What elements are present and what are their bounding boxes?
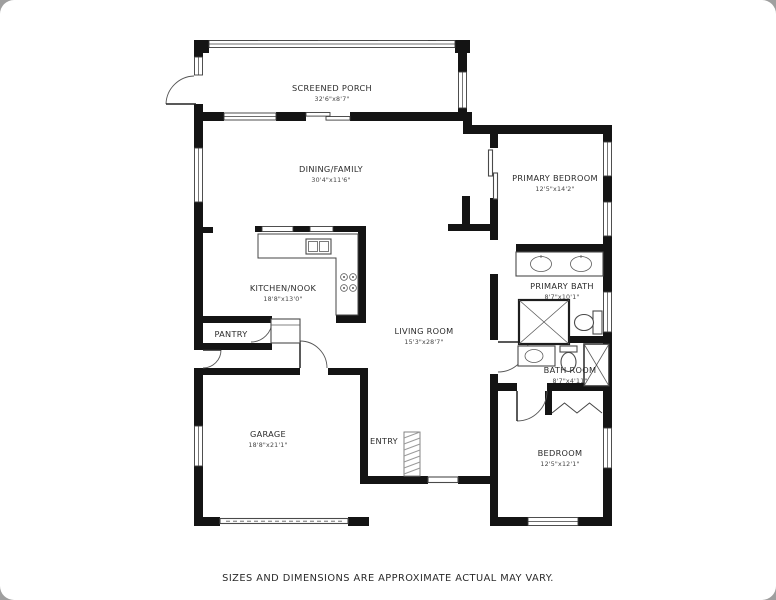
room-label-primary-bath: PRIMARY BATH <box>530 281 594 291</box>
room-dims-bedroom: 12'5"x12'1" <box>540 461 579 468</box>
refrigerator-icon <box>271 319 300 343</box>
room-dims-bath-room: 8'7"x4'11" <box>552 378 587 385</box>
toilet-icon <box>575 311 603 334</box>
room-label-living-room: LIVING ROOM <box>394 326 453 336</box>
room-dims-primary-bedroom: 12'5"x14'2" <box>535 186 574 193</box>
kitchen-sink-icon <box>306 239 331 254</box>
room-dims-dining-family: 30'4"x11'6" <box>311 177 350 184</box>
shower-icon <box>519 300 569 344</box>
room-dims-kitchen-nook: 18'8"x13'0" <box>263 296 302 303</box>
room-label-bedroom: BEDROOM <box>538 448 583 458</box>
room-dims-garage: 18'8"x21'1" <box>248 442 287 449</box>
double-vanity-icon <box>516 252 603 276</box>
room-label-entry: ENTRY <box>370 436 399 446</box>
floorplan-image: SCREENED PORCH32'6"x8'7"DINING/FAMILY30'… <box>0 0 776 600</box>
room-label-dining-family: DINING/FAMILY <box>299 164 364 174</box>
room-dims-living-room: 15'3"x28'7" <box>404 339 443 346</box>
room-label-pantry: PANTRY <box>214 329 248 339</box>
room-label-kitchen-nook: KITCHEN/NOOK <box>250 283 317 293</box>
room-label-primary-bedroom: PRIMARY BEDROOM <box>512 173 598 183</box>
room-label-garage: GARAGE <box>250 429 286 439</box>
garage-door-icon <box>220 519 348 524</box>
bath-sink-icon <box>518 346 555 366</box>
disclaimer-text: SIZES AND DIMENSIONS ARE APPROXIMATE ACT… <box>222 573 554 584</box>
room-label-screened-porch: SCREENED PORCH <box>292 83 372 93</box>
stove-icon <box>341 274 357 292</box>
room-dims-primary-bath: 8'7"x10'1" <box>544 294 579 301</box>
fixtures <box>258 234 609 476</box>
room-dims-screened-porch: 32'6"x8'7" <box>314 96 349 103</box>
entry-mat-icon <box>404 432 420 476</box>
room-label-bath-room: BATH ROOM <box>544 365 597 375</box>
closet-bifold-icon <box>552 403 602 413</box>
floorplan-svg: SCREENED PORCH32'6"x8'7"DINING/FAMILY30'… <box>0 0 776 600</box>
